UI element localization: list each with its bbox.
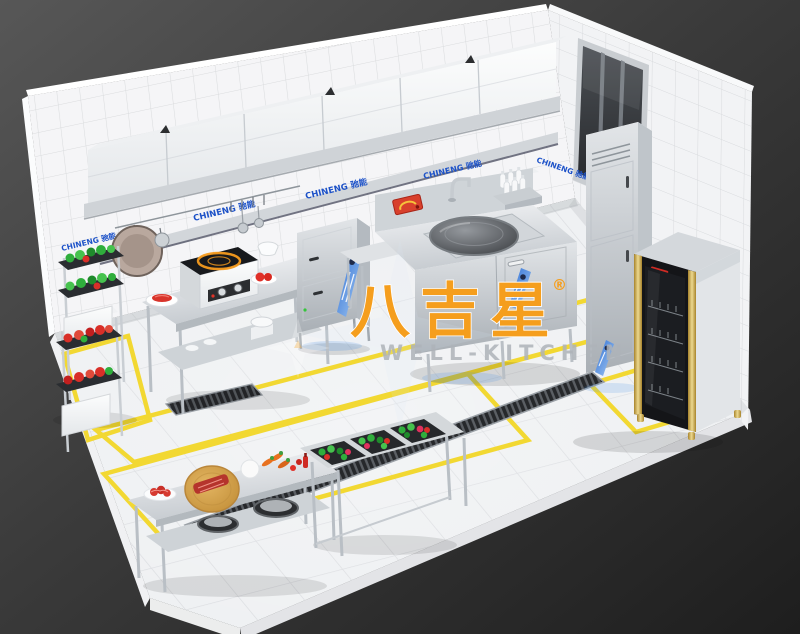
cup — [185, 345, 199, 352]
control-knob — [234, 284, 242, 292]
ladle — [255, 219, 264, 228]
control-knob — [218, 288, 226, 296]
cutting-board — [185, 466, 239, 512]
watermark-registered-mark: ® — [552, 276, 567, 294]
gold-trim — [688, 270, 696, 432]
pepper — [296, 459, 302, 465]
kitchen-render: CHINENG 驰能 CHINENG 驰能 CHINENG 驰能 CHINENG… — [0, 0, 800, 634]
tomato — [264, 273, 272, 281]
cup — [203, 339, 217, 346]
watermark-en-text: WELL-KITCHEN — [380, 341, 628, 365]
door-handle — [626, 250, 629, 262]
disinfection-cabinet — [634, 232, 741, 440]
ladle — [155, 233, 169, 247]
watermark-cn-text: 八吉星 — [350, 277, 560, 347]
tomato — [256, 273, 265, 282]
bowl — [258, 242, 278, 256]
sauce-bottle — [303, 456, 308, 468]
dough-ball — [241, 460, 259, 478]
pepper — [290, 465, 296, 471]
ladle — [238, 223, 248, 233]
gold-trim — [634, 254, 642, 416]
door-handle — [626, 176, 629, 188]
indicator-light — [303, 308, 306, 311]
container — [251, 317, 273, 327]
